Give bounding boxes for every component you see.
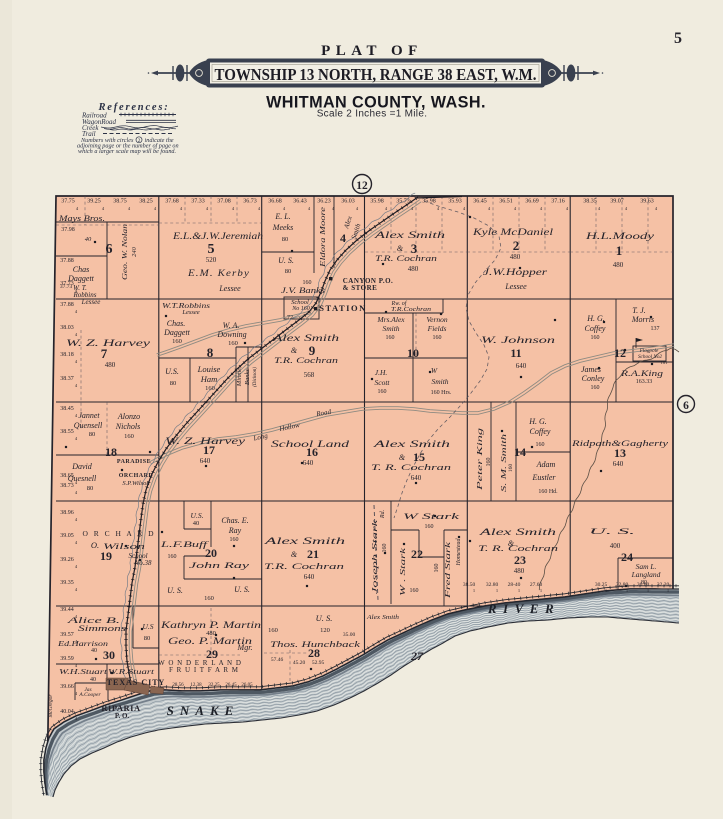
- svg-text:35.98: 35.98: [422, 199, 436, 205]
- svg-text:38.45: 38.45: [60, 406, 74, 412]
- svg-text:16: 16: [306, 445, 318, 459]
- svg-text:Mgr.: Mgr.: [237, 643, 253, 652]
- svg-text:161: 161: [661, 360, 669, 365]
- svg-text:37.98: 37.98: [61, 227, 75, 233]
- svg-text:T. R. Cochran: T. R. Cochran: [478, 543, 558, 553]
- svg-text:Lessee: Lessee: [504, 282, 527, 291]
- svg-text:ORCHARD: ORCHARD: [119, 473, 154, 479]
- svg-text:T.R. Cochran: T.R. Cochran: [264, 561, 344, 571]
- svg-text:80: 80: [285, 268, 292, 275]
- svg-text:19: 19: [100, 549, 112, 563]
- svg-text:80: 80: [170, 380, 177, 387]
- svg-text:&: &: [291, 550, 298, 559]
- svg-text:39.44: 39.44: [60, 607, 74, 613]
- svg-text:H. G.: H. G.: [528, 417, 547, 426]
- svg-text:1: 1: [647, 588, 649, 593]
- svg-text:Louise: Louise: [197, 364, 221, 374]
- svg-text:Alex Smith: Alex Smith: [271, 334, 339, 344]
- svg-text:32.25: 32.25: [208, 683, 220, 688]
- svg-text:38.25: 38.25: [139, 199, 153, 205]
- svg-text:TEXAS CITY: TEXAS CITY: [107, 678, 166, 687]
- svg-text:520: 520: [206, 256, 217, 264]
- svg-text:480: 480: [510, 253, 521, 261]
- svg-text:(Dickson): (Dickson): [253, 367, 258, 387]
- svg-text:Alex Smith: Alex Smith: [372, 440, 450, 450]
- svg-text:160: 160: [204, 595, 214, 602]
- svg-text:Rd.: Rd.: [380, 510, 386, 519]
- svg-text:1: 1: [667, 588, 669, 593]
- svg-text:38.65: 38.65: [60, 473, 74, 479]
- svg-text:40: 40: [90, 677, 96, 683]
- svg-text:160: 160: [425, 524, 434, 530]
- svg-text:Daggett: Daggett: [163, 328, 191, 337]
- svg-text:Nichols: Nichols: [115, 422, 140, 431]
- svg-text:Simmons: Simmons: [78, 623, 127, 633]
- svg-text:12.38: 12.38: [190, 683, 202, 688]
- svg-text:U.S: U.S: [142, 622, 153, 631]
- svg-text:38.73: 38.73: [60, 483, 74, 489]
- svg-text:Fields: Fields: [427, 324, 447, 333]
- svg-text:640: 640: [303, 459, 314, 467]
- svg-text:1: 1: [473, 588, 475, 593]
- svg-text:35.98: 35.98: [370, 199, 384, 205]
- svg-text:37.88: 37.88: [60, 258, 74, 264]
- svg-text:References:: References:: [97, 102, 169, 113]
- svg-text:Chas.: Chas.: [167, 319, 185, 328]
- svg-text:McGregor: McGregor: [48, 694, 54, 719]
- svg-text:21: 21: [307, 547, 319, 561]
- svg-text:36.45: 36.45: [473, 199, 487, 205]
- svg-text:38.96: 38.96: [60, 510, 74, 516]
- svg-text:Lessee: Lessee: [81, 298, 101, 306]
- svg-text:160: 160: [168, 554, 177, 560]
- svg-text:160: 160: [386, 335, 395, 341]
- svg-text:John Ray: John Ray: [189, 560, 249, 570]
- svg-text:6: 6: [106, 242, 113, 257]
- svg-text:160: 160: [536, 442, 545, 448]
- svg-text:11: 11: [510, 346, 521, 360]
- svg-text:38.18: 38.18: [60, 352, 74, 358]
- svg-text:480: 480: [514, 567, 525, 575]
- svg-text:39.57: 39.57: [60, 632, 74, 638]
- svg-text:W . Stark: W . Stark: [398, 547, 407, 596]
- svg-text:5: 5: [208, 242, 215, 257]
- svg-text:Scale 2 Inches =1 Mile.: Scale 2 Inches =1 Mile.: [317, 109, 428, 120]
- svg-text:52.95: 52.95: [312, 660, 325, 666]
- svg-text:45.20: 45.20: [293, 660, 306, 666]
- svg-text:E.M. Kerby: E.M. Kerby: [187, 269, 250, 279]
- svg-text:A.Cooper: A.Cooper: [78, 692, 101, 698]
- svg-text:40.04: 40.04: [60, 709, 74, 715]
- svg-text:26.45: 26.45: [225, 683, 237, 688]
- svg-text:Ham: Ham: [200, 374, 218, 384]
- svg-text:Quensell: Quensell: [74, 421, 103, 430]
- svg-text:T.R. Cochran: T.R. Cochran: [375, 253, 437, 263]
- svg-text:Conley: Conley: [582, 374, 605, 383]
- svg-text:12: 12: [356, 180, 368, 192]
- svg-text:37.73: 37.73: [60, 281, 74, 287]
- svg-text:No 160: No 160: [291, 306, 310, 312]
- svg-text:137: 137: [651, 326, 660, 332]
- svg-text:Mays Bros.: Mays Bros.: [58, 213, 105, 223]
- svg-text:37.08: 37.08: [217, 199, 231, 205]
- svg-text:26.05: 26.05: [241, 683, 253, 688]
- svg-text:Smith: Smith: [431, 377, 448, 386]
- svg-text:36.43: 36.43: [293, 199, 307, 205]
- svg-text:U. S.: U. S.: [278, 256, 294, 265]
- svg-text:160: 160: [486, 458, 492, 467]
- svg-text:240: 240: [131, 246, 138, 257]
- svg-text:17: 17: [203, 443, 215, 457]
- svg-text:U. S.: U. S.: [589, 526, 635, 536]
- svg-text:U. S.: U. S.: [234, 585, 250, 594]
- svg-text:Banks: Banks: [244, 369, 251, 385]
- svg-text:38.55: 38.55: [60, 429, 74, 435]
- svg-text:36.51: 36.51: [499, 199, 513, 205]
- svg-text:37.68: 37.68: [165, 199, 179, 205]
- svg-text:W. Johnson: W. Johnson: [481, 336, 555, 346]
- svg-text:568: 568: [304, 371, 315, 379]
- svg-text:L.F.Buff: L.F.Buff: [159, 539, 209, 549]
- svg-text:160: 160: [205, 385, 215, 392]
- svg-text:H.L.Moody: H.L.Moody: [584, 232, 655, 242]
- svg-text:13: 13: [614, 446, 626, 460]
- svg-text:Downing: Downing: [216, 330, 246, 339]
- svg-text:RIVER: RIVER: [487, 601, 560, 616]
- svg-text:38.35: 38.35: [583, 199, 597, 205]
- svg-text:U. S.: U. S.: [167, 586, 183, 595]
- svg-text:Scott: Scott: [375, 378, 391, 387]
- svg-text:640: 640: [411, 474, 422, 482]
- svg-text:Adam: Adam: [536, 460, 556, 469]
- svg-text:160: 160: [172, 338, 182, 345]
- svg-text:1: 1: [518, 588, 520, 593]
- svg-text:640: 640: [304, 573, 315, 581]
- svg-text:30: 30: [103, 648, 115, 662]
- svg-text:T.R. Cochran: T.R. Cochran: [274, 355, 338, 365]
- svg-text:Mrs.Alex: Mrs.Alex: [376, 315, 405, 324]
- svg-text:Smith: Smith: [382, 324, 399, 333]
- svg-text:20: 20: [205, 546, 217, 560]
- svg-text:160: 160: [268, 627, 278, 634]
- svg-text:1: 1: [496, 588, 498, 593]
- svg-text:1: 1: [626, 588, 628, 593]
- svg-text:28: 28: [308, 646, 320, 660]
- svg-text:S.P.Wilson: S.P.Wilson: [122, 480, 149, 487]
- svg-text:H. G.: H. G.: [586, 314, 605, 323]
- svg-text:400: 400: [610, 542, 621, 550]
- svg-text:640: 640: [200, 457, 211, 465]
- svg-text:37.88: 37.88: [60, 302, 74, 308]
- svg-text:which a larger scale map will: which a larger scale map will be found.: [78, 148, 176, 155]
- svg-text:U.S.: U.S.: [191, 511, 204, 520]
- svg-text:163.33: 163.33: [636, 379, 653, 385]
- svg-text:Kathryn P. Martin: Kathryn P. Martin: [159, 620, 261, 630]
- svg-text:160: 160: [591, 335, 600, 341]
- svg-text:37.33: 37.33: [191, 199, 205, 205]
- svg-text:38.37: 38.37: [60, 376, 74, 382]
- svg-text:38.03: 38.03: [60, 325, 74, 331]
- svg-text:2: 2: [513, 238, 520, 253]
- svg-text:Rw. of: Rw. of: [391, 300, 408, 307]
- svg-text:&: &: [397, 244, 404, 253]
- svg-text:Chas: Chas: [73, 265, 89, 274]
- svg-text:480: 480: [105, 361, 116, 369]
- svg-text:27: 27: [410, 649, 424, 663]
- svg-text:120: 120: [320, 627, 330, 634]
- svg-text:Minnie: Minnie: [236, 368, 243, 388]
- svg-text:160: 160: [382, 544, 388, 553]
- svg-text:1: 1: [540, 588, 542, 593]
- svg-text:Geo. W. Nolan: Geo. W. Nolan: [120, 224, 129, 280]
- svg-text:David: David: [71, 462, 93, 471]
- svg-text:37.75: 37.75: [61, 199, 75, 205]
- svg-text:E.L.&J.W.Jeremiah: E.L.&J.W.Jeremiah: [172, 231, 264, 241]
- svg-text:James: James: [581, 365, 601, 374]
- svg-text:36.68: 36.68: [268, 199, 282, 205]
- svg-text:39.63: 39.63: [640, 199, 654, 205]
- svg-text:36.03: 36.03: [341, 199, 355, 205]
- svg-text:Ray: Ray: [228, 526, 242, 535]
- svg-text:R.A.King: R.A.King: [620, 369, 663, 378]
- svg-text:80: 80: [89, 431, 96, 438]
- svg-text:SNAKE: SNAKE: [167, 703, 240, 718]
- svg-text:PARADISE: PARADISE: [117, 459, 151, 465]
- svg-text:160: 160: [228, 340, 238, 347]
- svg-text:Fred Stark: Fred Stark: [443, 541, 452, 600]
- svg-text:40: 40: [91, 648, 97, 654]
- svg-text:72: 72: [287, 315, 293, 321]
- svg-text:7: 7: [101, 346, 108, 361]
- svg-text:1: 1: [616, 243, 623, 258]
- svg-text:Lessee: Lessee: [218, 284, 241, 293]
- svg-text:28.56: 28.56: [172, 683, 184, 688]
- svg-text:W: W: [431, 366, 438, 375]
- svg-text:80: 80: [87, 485, 94, 492]
- svg-text:J.H.: J.H.: [375, 368, 388, 377]
- svg-text:T. J.: T. J.: [632, 306, 645, 315]
- svg-text:Kyle McDaniel: Kyle McDaniel: [472, 227, 554, 237]
- svg-text:80: 80: [144, 635, 151, 642]
- svg-text:480: 480: [408, 265, 419, 273]
- svg-text:39.26: 39.26: [60, 557, 74, 563]
- svg-text:P. O.: P. O.: [115, 712, 130, 720]
- svg-text:480: 480: [613, 261, 624, 269]
- svg-text:160 Hd.: 160 Hd.: [538, 489, 558, 495]
- svg-text:W.H.Stuart: W.H.Stuart: [59, 667, 108, 676]
- svg-text:W. Z. Harvey: W. Z. Harvey: [66, 339, 151, 349]
- svg-text:36.23: 36.23: [317, 199, 331, 205]
- svg-text:640: 640: [516, 362, 527, 370]
- svg-text:8: 8: [207, 345, 214, 360]
- svg-text:36.69: 36.69: [525, 199, 539, 205]
- svg-text:10: 10: [407, 346, 419, 360]
- svg-text:School No2: School No2: [638, 354, 662, 360]
- svg-text:&: &: [399, 453, 406, 462]
- svg-text:35.73: 35.73: [396, 199, 410, 205]
- svg-text:14: 14: [514, 445, 526, 459]
- svg-text:& STORE: & STORE: [343, 284, 378, 292]
- svg-text:TOWNSHIP 13 NORTH, RANGE 38 EA: TOWNSHIP 13 NORTH, RANGE 38 EAST, W.M.: [215, 65, 537, 84]
- svg-text:160: 160: [591, 385, 600, 391]
- svg-text:Coffey: Coffey: [585, 324, 606, 333]
- svg-text:O.: O.: [91, 540, 99, 550]
- svg-text:Joseph Stark: Joseph Stark: [370, 519, 379, 594]
- svg-text:T.R.Cochran: T.R.Cochran: [391, 307, 431, 313]
- svg-text:Alex Smith: Alex Smith: [366, 615, 399, 621]
- svg-text:U.S.: U.S.: [165, 367, 179, 376]
- svg-text:E. L.: E. L.: [274, 212, 290, 221]
- svg-text:40: 40: [193, 520, 200, 527]
- svg-text:Langland: Langland: [631, 570, 661, 579]
- svg-text:640: 640: [613, 460, 624, 468]
- svg-text:160: 160: [124, 433, 134, 440]
- svg-text:Alonzo: Alonzo: [117, 412, 140, 421]
- svg-text:39.66: 39.66: [60, 684, 74, 690]
- svg-text:Meeks: Meeks: [272, 223, 293, 232]
- svg-text:W.R.Stuart: W.R.Stuart: [108, 667, 155, 676]
- svg-text:160: 160: [434, 564, 440, 573]
- svg-text:160: 160: [508, 464, 514, 473]
- svg-text:U. S.: U. S.: [316, 613, 333, 623]
- svg-text:18: 18: [105, 445, 117, 459]
- svg-text:Chas. E.: Chas. E.: [221, 516, 248, 525]
- svg-text:T. R. Cochran: T. R. Cochran: [371, 462, 451, 472]
- svg-text:160: 160: [433, 335, 442, 341]
- svg-text:40: 40: [85, 236, 92, 243]
- svg-text:Coffey: Coffey: [530, 427, 551, 436]
- svg-text:Alex Smith: Alex Smith: [478, 528, 556, 538]
- svg-text:38.75: 38.75: [113, 199, 127, 205]
- svg-text:160: 160: [230, 537, 239, 543]
- svg-text:School: School: [291, 299, 309, 306]
- svg-text:1: 1: [605, 588, 607, 593]
- svg-text:160: 160: [378, 389, 387, 395]
- svg-text:24: 24: [621, 550, 633, 564]
- svg-text:Vernon: Vernon: [426, 315, 447, 324]
- svg-text:J.W.Hopper: J.W.Hopper: [483, 267, 548, 277]
- svg-text:37.16: 37.16: [551, 199, 565, 205]
- svg-text:6: 6: [683, 400, 689, 412]
- svg-text:80: 80: [282, 236, 289, 243]
- svg-text:Ed.Harrison: Ed.Harrison: [57, 639, 109, 648]
- svg-text:STATION: STATION: [319, 303, 367, 313]
- svg-text:Alex Smith: Alex Smith: [263, 537, 345, 547]
- svg-text:S. M. Smith: S. M. Smith: [499, 434, 508, 492]
- svg-text:Lessee: Lessee: [181, 309, 199, 316]
- svg-text:35.93: 35.93: [448, 199, 462, 205]
- svg-text:160 Hrs.: 160 Hrs.: [431, 390, 452, 396]
- svg-text:O R C H A R D: O R C H A R D: [82, 529, 155, 538]
- svg-text:Alex Smith: Alex Smith: [373, 231, 445, 241]
- svg-text:160: 160: [410, 588, 419, 594]
- svg-text:57.46: 57.46: [271, 657, 284, 663]
- svg-text:Eldora Moore: Eldora Moore: [319, 207, 327, 269]
- svg-text:W Stark: W Stark: [403, 511, 459, 521]
- svg-text:39.59: 39.59: [60, 656, 74, 662]
- svg-text:J.V. Banks: J.V. Banks: [281, 286, 325, 295]
- svg-text:W. A.: W. A.: [223, 321, 240, 330]
- svg-text:39.05: 39.05: [60, 533, 74, 539]
- svg-text:36.73: 36.73: [243, 199, 257, 205]
- svg-text:4: 4: [340, 231, 346, 245]
- svg-text:22: 22: [411, 547, 423, 561]
- svg-text:No.38: No.38: [134, 559, 152, 567]
- svg-text:Homestead: Homestead: [456, 538, 462, 567]
- svg-text:Jannet: Jannet: [78, 411, 100, 420]
- svg-text:F R U I T F A R M: F R U I T F A R M: [169, 666, 239, 674]
- svg-text:12: 12: [614, 346, 626, 360]
- svg-text:35.00: 35.00: [343, 632, 356, 638]
- svg-text:39.25: 39.25: [87, 199, 101, 205]
- svg-text:PLAT OF: PLAT OF: [321, 43, 423, 59]
- svg-text:Eustler: Eustler: [531, 473, 556, 482]
- svg-text:5: 5: [674, 30, 682, 47]
- svg-text:23: 23: [514, 553, 526, 567]
- svg-text:&: &: [291, 346, 298, 355]
- svg-text:Peter King: Peter King: [475, 428, 484, 492]
- svg-text:39.07: 39.07: [610, 199, 624, 205]
- svg-text:39.35: 39.35: [60, 580, 74, 586]
